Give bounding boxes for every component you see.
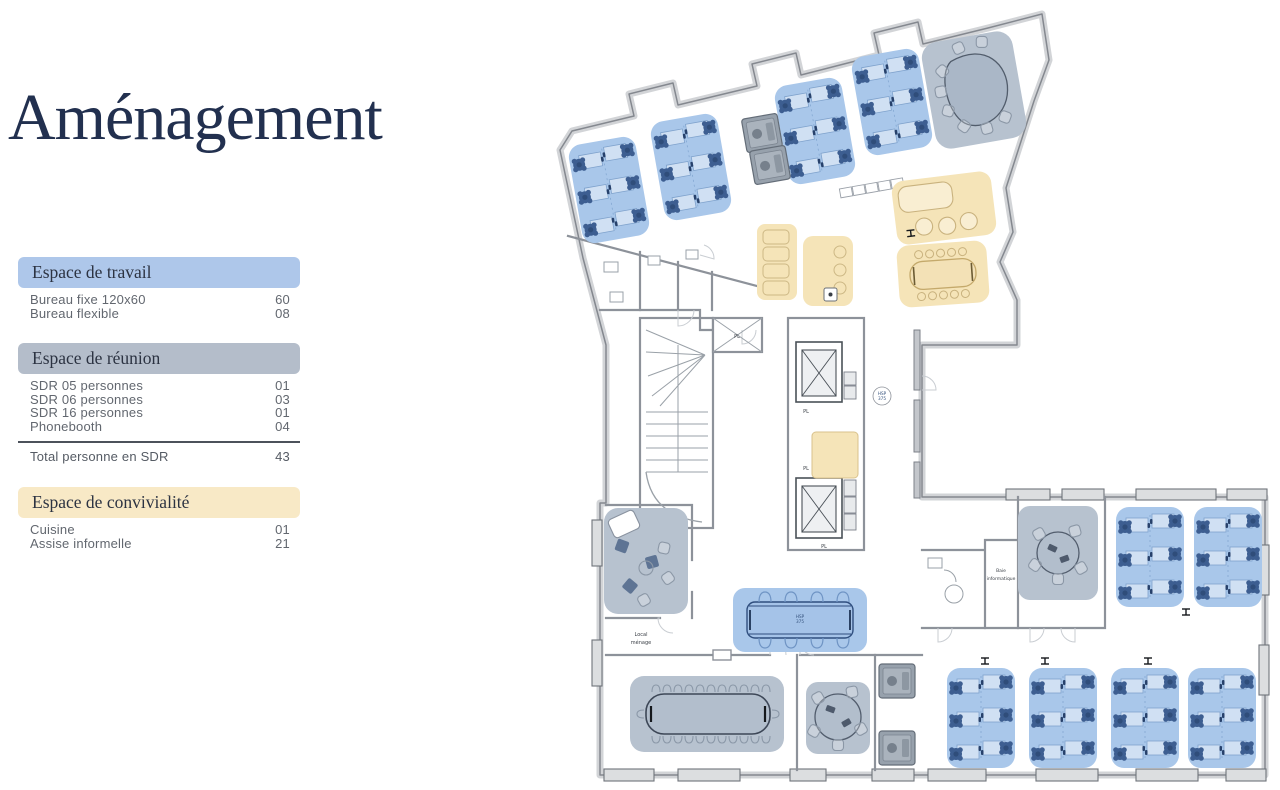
closet-label: PL — [821, 544, 827, 550]
room-label: informatique — [987, 576, 1016, 582]
page-title: Aménagement — [8, 80, 528, 156]
legend-row: SDR 05 personnes 01 — [18, 379, 300, 393]
floor-plan: PL PL PL PL HSP 375 — [545, 0, 1280, 785]
legend-item-value: 04 — [275, 420, 290, 434]
meeting-room-16 — [630, 676, 784, 752]
legend-item-value: 08 — [275, 307, 290, 321]
meeting-room-round — [806, 682, 870, 754]
legend-row: Assise informelle 21 — [18, 537, 300, 551]
legend-total-value: 43 — [275, 449, 290, 464]
hsp-label: 375 — [878, 396, 886, 401]
informal-seating-zone — [604, 508, 688, 614]
meeting-table-blue: HSP 375 — [733, 588, 867, 652]
closet-label: PL — [734, 334, 740, 340]
closet-label: PL — [803, 409, 809, 415]
legend-section-social: Espace de convivialité Cuisine 01 Assise… — [18, 487, 300, 550]
legend-rows-work: Bureau fixe 120x60 60 Bureau flexible 08 — [18, 293, 300, 320]
desk-block — [1111, 668, 1179, 768]
room-label: Local — [635, 632, 648, 638]
table-tag: 375 — [796, 619, 804, 624]
desk-block — [1188, 668, 1256, 768]
ceiling-height-marker: HSP 375 — [873, 387, 891, 405]
legend-row: Bureau fixe 120x60 60 — [18, 293, 300, 307]
legend-item-label: SDR 05 personnes — [30, 379, 143, 393]
legend-row: SDR 16 personnes 01 — [18, 406, 300, 420]
legend-header-meeting: Espace de réunion — [18, 343, 300, 374]
legend-item-label: SDR 06 personnes — [30, 393, 143, 407]
legend-item-value: 01 — [275, 406, 290, 420]
corridor-walls — [914, 330, 920, 498]
legend-item-label: SDR 16 personnes — [30, 406, 143, 420]
legend-item-label: Assise informelle — [30, 537, 132, 551]
legend-header-meeting-label: Espace de réunion — [32, 348, 160, 369]
legend-item-label: Bureau fixe 120x60 — [30, 293, 146, 307]
phonebooth — [879, 664, 915, 698]
legend-header-work: Espace de travail — [18, 257, 300, 288]
phonebooth — [749, 145, 790, 185]
banquette-zone — [803, 236, 853, 306]
legend-row: Cuisine 01 — [18, 523, 300, 537]
legend-row: Phonebooth 04 — [18, 420, 300, 434]
legend-item-value: 60 — [275, 293, 290, 307]
room-label: Baie — [996, 568, 1006, 574]
banquette-zone — [757, 224, 797, 300]
desk-block — [1194, 507, 1262, 607]
kitchen-sofa-zone — [890, 170, 997, 246]
legend-section-meeting: Espace de réunion SDR 05 personnes 01 SD… — [18, 343, 300, 464]
desk-block — [947, 668, 1015, 768]
legend-item-value: 01 — [275, 523, 290, 537]
desk-block — [1029, 668, 1097, 768]
legend-item-label: Phonebooth — [30, 420, 102, 434]
desk-block — [1116, 507, 1184, 607]
legend-item-value: 03 — [275, 393, 290, 407]
legend-item-value: 21 — [275, 537, 290, 551]
legend-item-label: Cuisine — [30, 523, 75, 537]
legend-header-social: Espace de convivialité — [18, 487, 300, 518]
legend-rows-meeting: SDR 05 personnes 01 SDR 06 personnes 03 … — [18, 379, 300, 464]
legend-total-row: Total personne en SDR 43 — [18, 447, 300, 464]
pantry-zone — [812, 432, 858, 478]
legend-rows-social: Cuisine 01 Assise informelle 21 — [18, 523, 300, 550]
legend-total-label: Total personne en SDR — [30, 449, 169, 464]
legend-section-work: Espace de travail Bureau fixe 120x60 60 … — [18, 257, 300, 320]
legend-item-label: Bureau flexible — [30, 307, 119, 321]
legend-row: Bureau flexible 08 — [18, 307, 300, 321]
legend-divider — [18, 441, 300, 443]
meeting-room-oval — [919, 29, 1028, 151]
phonebooth — [879, 731, 915, 765]
kitchen-table-zone — [896, 240, 990, 308]
legend-header-social-label: Espace de convivialité — [32, 492, 189, 513]
legend-row: SDR 06 personnes 03 — [18, 393, 300, 407]
legend-item-value: 01 — [275, 379, 290, 393]
legend-header-work-label: Espace de travail — [32, 262, 152, 283]
closet-label: PL — [803, 466, 809, 472]
room-label: ménage — [631, 639, 651, 646]
flex-room-round — [1018, 506, 1098, 600]
